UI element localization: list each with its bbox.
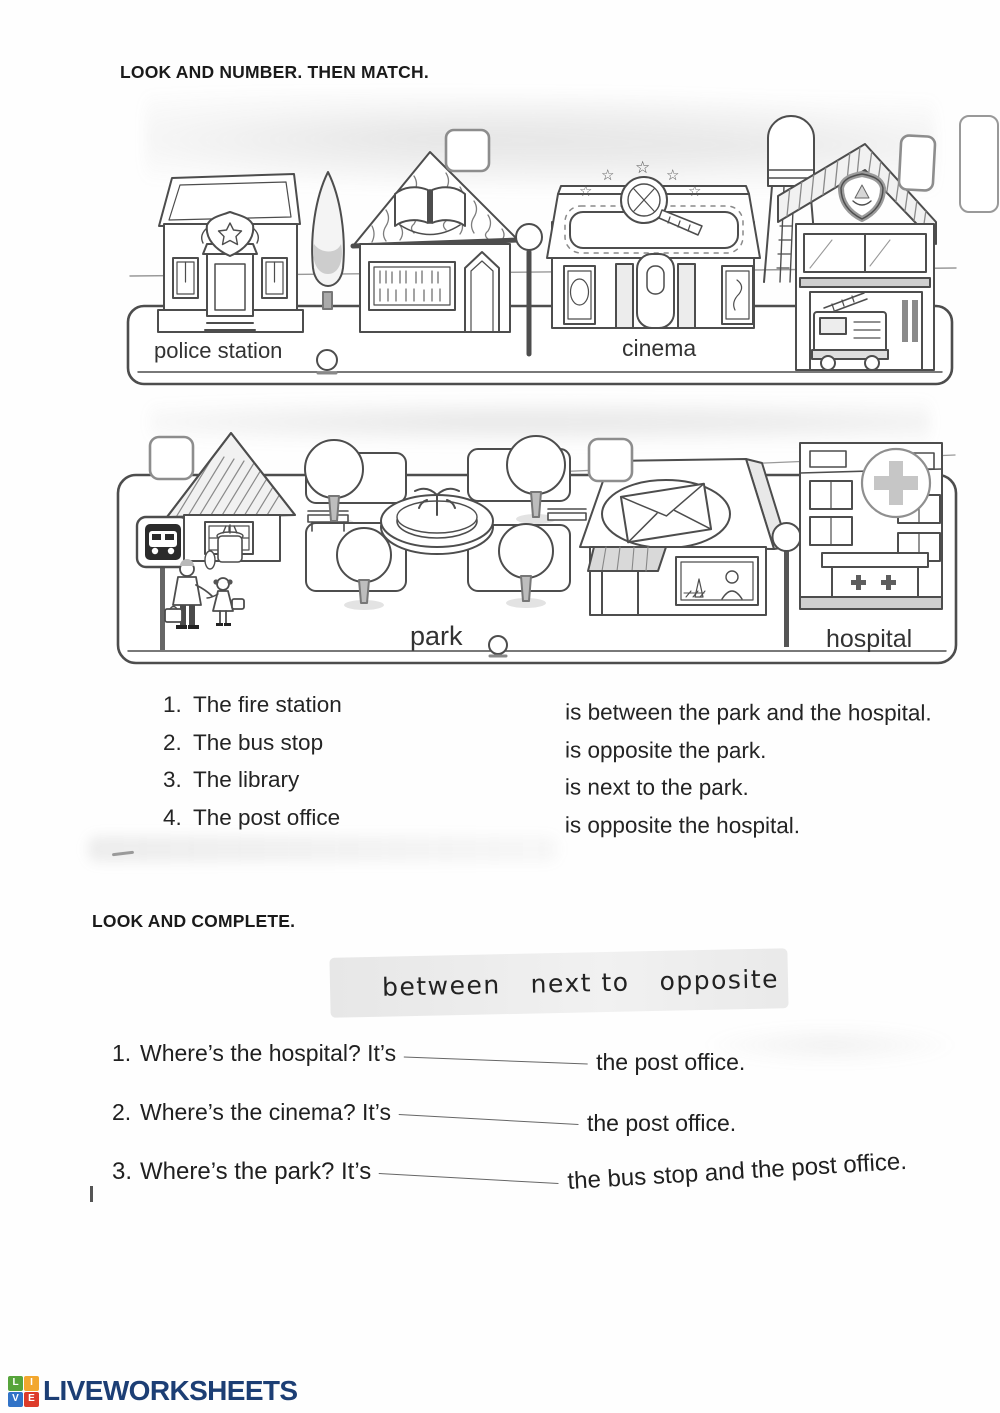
item-text: The library bbox=[193, 767, 299, 792]
match-ending[interactable]: is opposite the hospital. bbox=[565, 806, 932, 845]
question-row: 3.Where’s the park? It’sthe bus stop and… bbox=[112, 1158, 907, 1186]
matching-endings-column: is between the park and the hospital. is… bbox=[565, 694, 932, 845]
answer-box-fire-station[interactable] bbox=[899, 135, 936, 191]
logo-tile: L bbox=[8, 1376, 23, 1391]
brand-name: LIVEWORKSHEETS bbox=[43, 1375, 298, 1407]
tree-illustration bbox=[312, 172, 344, 309]
post-office-illustration bbox=[580, 459, 788, 615]
pencil-dash-mark bbox=[112, 851, 134, 857]
answer-blank-2[interactable] bbox=[399, 1100, 580, 1125]
liveworksheets-logo-icon: L I V E bbox=[8, 1376, 39, 1407]
matching-items-column: 1.The fire station 2.The bus stop 3.The … bbox=[163, 686, 342, 836]
section-title-look-and-complete: LOOK AND COMPLETE. bbox=[92, 911, 295, 932]
word-bank-word: between bbox=[382, 970, 501, 1001]
street-scene-top: ☆ ☆ ☆ ☆ ☆ bbox=[110, 86, 1000, 388]
svg-text:☆: ☆ bbox=[688, 183, 701, 200]
question-row: 2.Where’s the cinema? It’sthe post offic… bbox=[112, 1099, 736, 1126]
word-bank-word: opposite bbox=[659, 964, 779, 995]
cinema-illustration: ☆ ☆ ☆ ☆ ☆ bbox=[547, 158, 760, 328]
label-park: park bbox=[410, 621, 463, 651]
question-number: 2. bbox=[112, 1099, 140, 1126]
match-item[interactable]: 2.The bus stop bbox=[163, 724, 342, 762]
question-prompt: Where’s the park? It’s bbox=[140, 1158, 371, 1185]
question-prompt: Where’s the hospital? It’s bbox=[140, 1040, 396, 1066]
scan-smudge bbox=[88, 836, 558, 862]
match-ending[interactable]: is between the park and the hospital. bbox=[565, 694, 932, 733]
liveworksheets-logo: L I V E LIVEWORKSHEETS bbox=[8, 1375, 298, 1407]
match-item[interactable]: 1.The fire station bbox=[163, 686, 342, 724]
logo-tile: I bbox=[24, 1376, 39, 1391]
answer-box-bus-stop[interactable] bbox=[150, 437, 193, 479]
svg-text:☆: ☆ bbox=[579, 183, 592, 200]
question-prompt: Where’s the cinema? It’s bbox=[140, 1099, 391, 1125]
street-scene-bottom: park hospital bbox=[110, 395, 970, 680]
answer-blank-1[interactable] bbox=[404, 1042, 588, 1064]
question-number: 1. bbox=[112, 1040, 140, 1067]
svg-text:☆: ☆ bbox=[601, 167, 614, 184]
word-bank-word: next to bbox=[530, 967, 630, 998]
library-illustration bbox=[353, 152, 518, 332]
page-edge-mark bbox=[90, 1186, 93, 1202]
logo-tile: E bbox=[24, 1392, 39, 1407]
item-number: 1. bbox=[163, 686, 193, 724]
match-item[interactable]: 3.The library bbox=[163, 761, 342, 799]
match-item[interactable]: 4.The post office bbox=[163, 799, 342, 837]
label-cinema: cinema bbox=[622, 335, 696, 361]
question-after: the post office. bbox=[587, 1110, 736, 1137]
item-number: 2. bbox=[163, 724, 193, 762]
label-hospital: hospital bbox=[826, 625, 912, 653]
svg-text:☆: ☆ bbox=[666, 167, 679, 184]
item-text: The post office bbox=[193, 805, 340, 830]
hospital-illustration bbox=[800, 443, 942, 609]
label-police-station: police station bbox=[154, 338, 282, 363]
question-after: the bus stop and the post office. bbox=[567, 1148, 908, 1196]
logo-tile: V bbox=[8, 1392, 23, 1407]
word-bank: between next to opposite bbox=[329, 948, 788, 1018]
answer-box-library[interactable] bbox=[446, 130, 489, 171]
svg-text:☆: ☆ bbox=[635, 158, 650, 177]
question-number: 3. bbox=[112, 1158, 140, 1186]
question-row: 1.Where’s the hospital? It’sthe post off… bbox=[112, 1040, 745, 1067]
match-ending[interactable]: is next to the park. bbox=[565, 769, 932, 808]
item-number: 3. bbox=[163, 761, 193, 799]
police-station-illustration bbox=[158, 174, 303, 332]
section-title-look-and-number: LOOK AND NUMBER. THEN MATCH. bbox=[120, 62, 429, 83]
item-text: The bus stop bbox=[193, 730, 323, 755]
item-text: The fire station bbox=[193, 692, 342, 717]
question-after: the post office. bbox=[596, 1049, 745, 1076]
answer-box-post-office[interactable] bbox=[589, 439, 632, 481]
match-ending[interactable]: is opposite the park. bbox=[565, 731, 932, 770]
item-number: 4. bbox=[163, 799, 193, 837]
answer-blank-3[interactable] bbox=[379, 1159, 560, 1184]
